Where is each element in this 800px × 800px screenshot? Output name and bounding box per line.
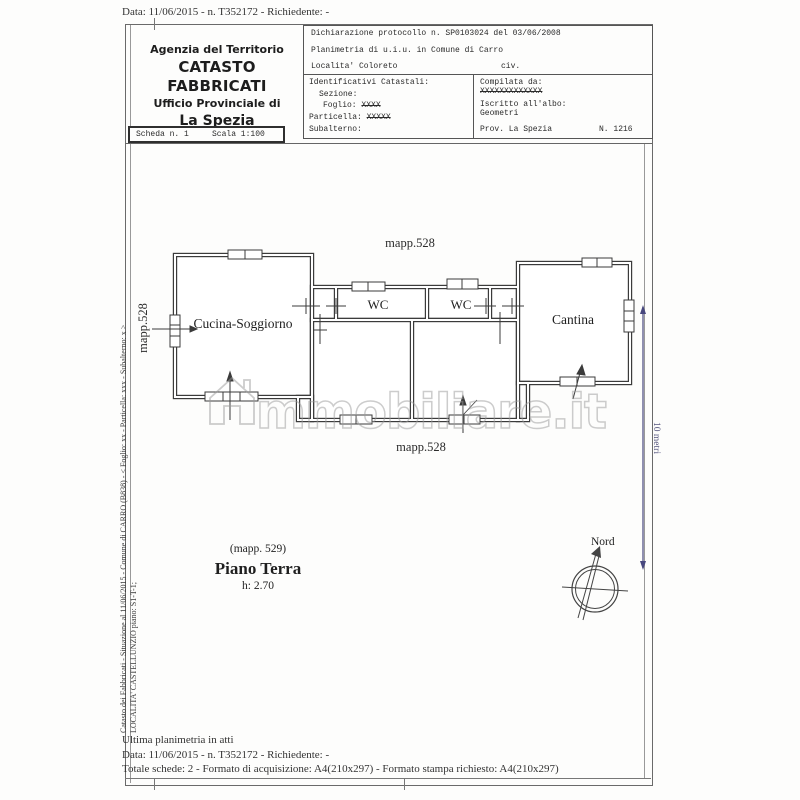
room-label-wc1: WC [368, 297, 389, 312]
compass-label: Nord [591, 536, 615, 548]
cadastral-document-page: { "document": { "top_line": "Data: 11/06… [0, 0, 800, 800]
caption-title: Piano Terra [215, 559, 302, 578]
mapp-label-left: mapp.528 [136, 303, 150, 353]
footer-line3: Totale schede: 2 - Formato di acquisizio… [122, 763, 559, 775]
mapp-label-bottom: mapp.528 [396, 440, 446, 454]
wc-band-walls [312, 287, 518, 320]
immobiliare-watermark: mmobiliare.it [210, 378, 606, 440]
scale-label: 10 metri [651, 422, 661, 454]
plan-caption: (mapp. 529) Piano Terra h: 2.70 [215, 543, 302, 592]
sidebar-rotated-line2: LOCALITA' CASTELLUNZIO piano: S1-T-1; [129, 582, 138, 733]
sidebar-rotated-line1: Catasto dei Fabbricati - Situazione al 1… [119, 325, 128, 733]
caption-mapp: (mapp. 529) [230, 543, 286, 555]
footer-line1: Ultima planimetria in atti [122, 734, 234, 746]
mapp-label-top: mapp.528 [385, 236, 435, 250]
scale-dimension-line: 10 metri [640, 305, 661, 570]
footer-line2: Data: 11/06/2015 - n. T352172 - Richiede… [122, 749, 329, 761]
watermark-text: mmobiliare.it [256, 384, 606, 440]
caption-height: h: 2.70 [242, 580, 274, 592]
room-label-wc2: WC [451, 297, 472, 312]
room-label-cantina: Cantina [552, 312, 594, 327]
window-icon [624, 300, 634, 332]
compass-icon [562, 546, 628, 620]
room-label-cucina: Cucina-Soggiorno [194, 316, 293, 331]
window-icon [170, 315, 180, 347]
